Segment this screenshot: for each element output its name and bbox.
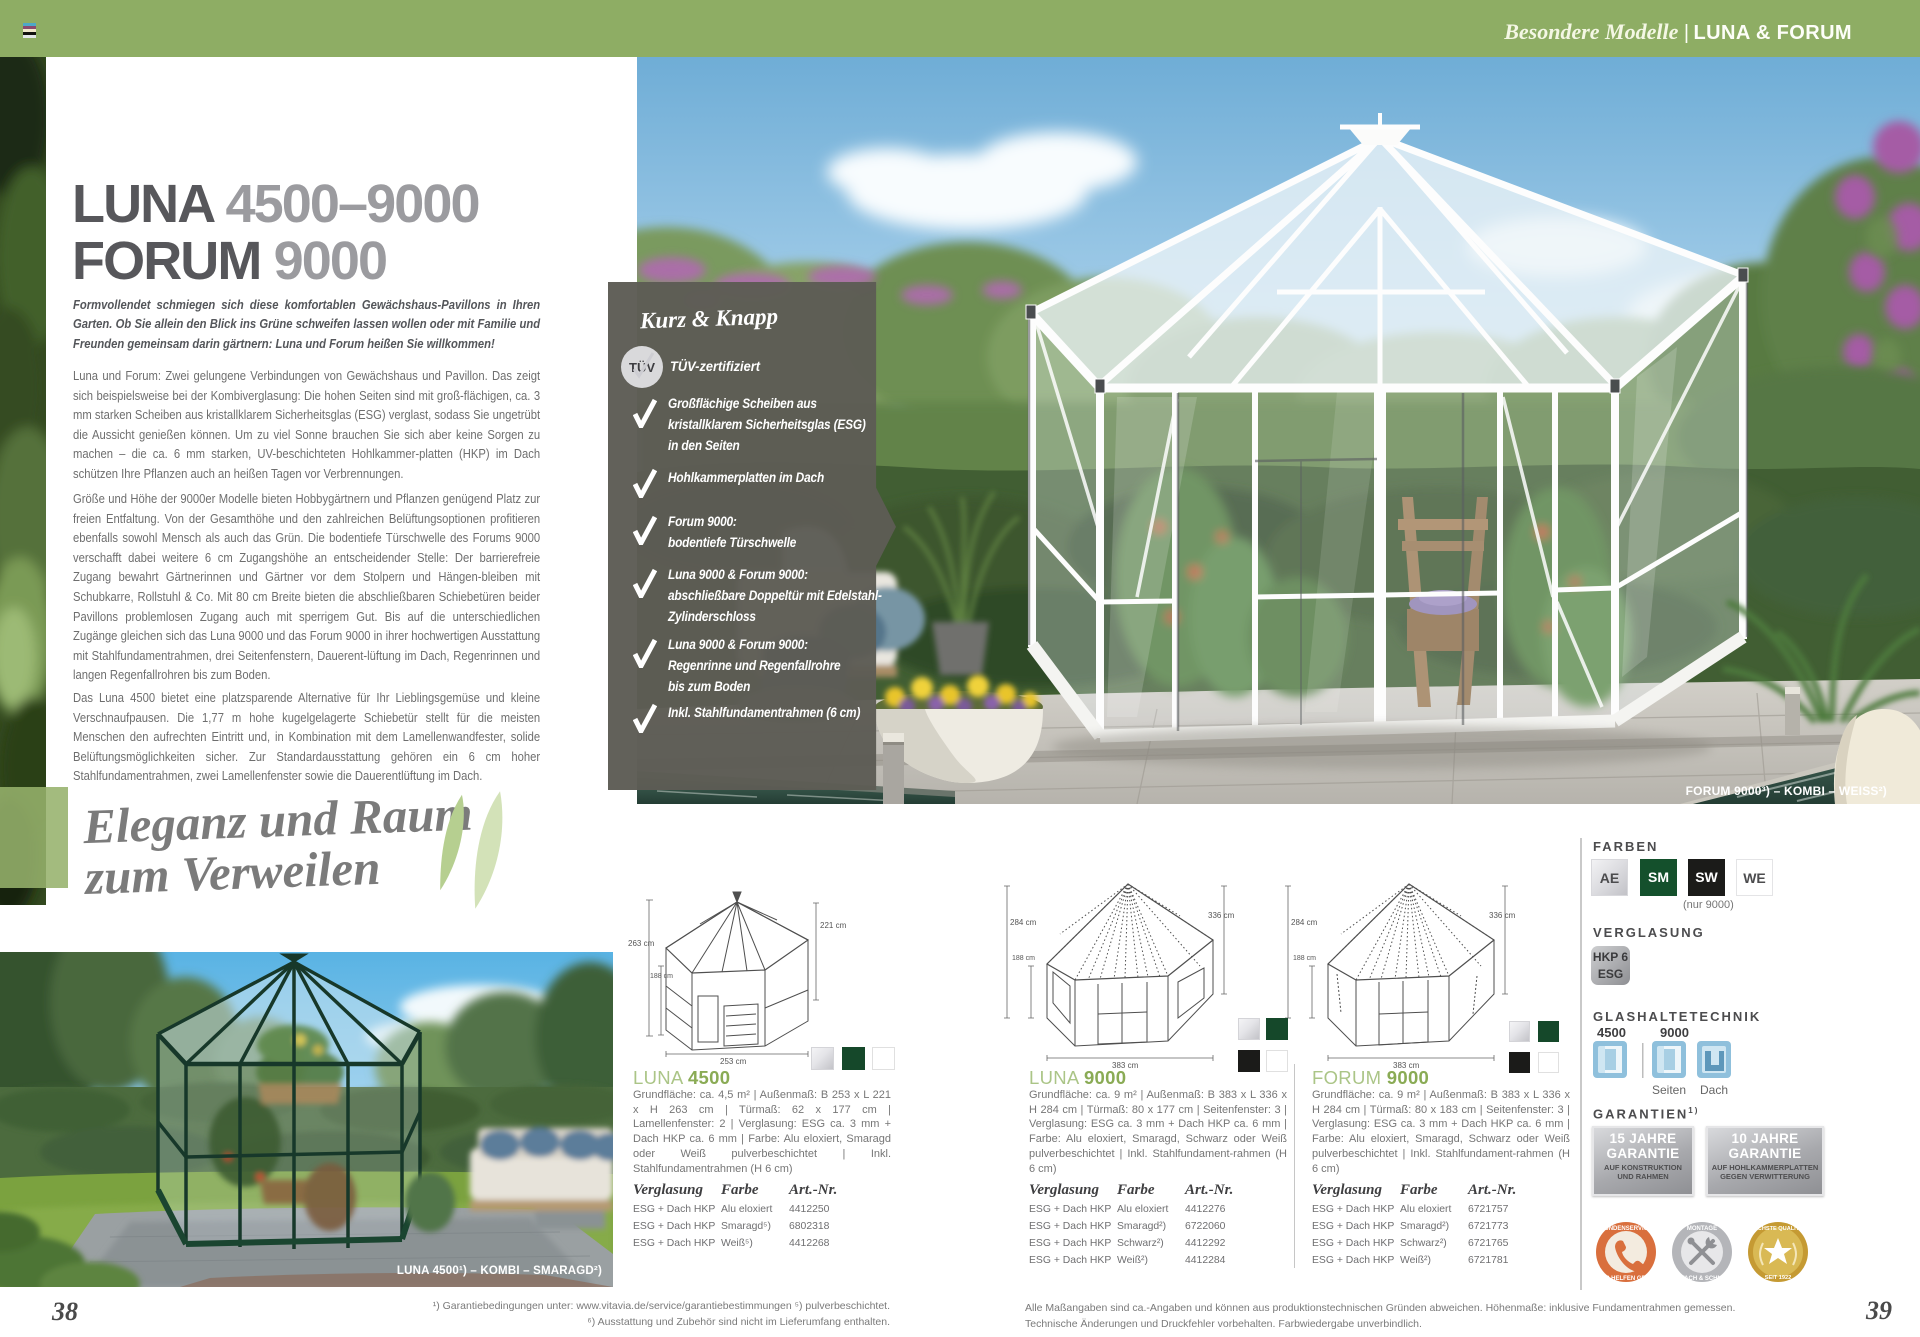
svg-text:284 cm: 284 cm — [1010, 918, 1037, 927]
svg-text:253 cm: 253 cm — [720, 1057, 747, 1066]
svg-text:336 cm: 336 cm — [1489, 911, 1516, 920]
svg-text:WIR HELFEN GERN: WIR HELFEN GERN — [1598, 1276, 1654, 1282]
svg-text:EINFACH & SCHNELL: EINFACH & SCHNELL — [1671, 1276, 1734, 1282]
svg-text:188 cm: 188 cm — [1293, 955, 1316, 962]
svg-text:MONTAGE: MONTAGE — [1687, 1226, 1717, 1232]
svg-text:188 cm: 188 cm — [1012, 955, 1035, 962]
svg-text:KUNDENSERVICE: KUNDENSERVICE — [1600, 1226, 1652, 1232]
svg-text:284 cm: 284 cm — [1291, 918, 1318, 927]
svg-text:336 cm: 336 cm — [1208, 911, 1235, 920]
svg-text:263 cm: 263 cm — [628, 939, 655, 948]
svg-text:188 cm: 188 cm — [650, 973, 673, 980]
svg-text:221 cm: 221 cm — [820, 921, 847, 930]
svg-text:HÖCHSTE QUALITÄT: HÖCHSTE QUALITÄT — [1749, 1225, 1807, 1232]
svg-text:SEIT 1922: SEIT 1922 — [1765, 1275, 1791, 1281]
